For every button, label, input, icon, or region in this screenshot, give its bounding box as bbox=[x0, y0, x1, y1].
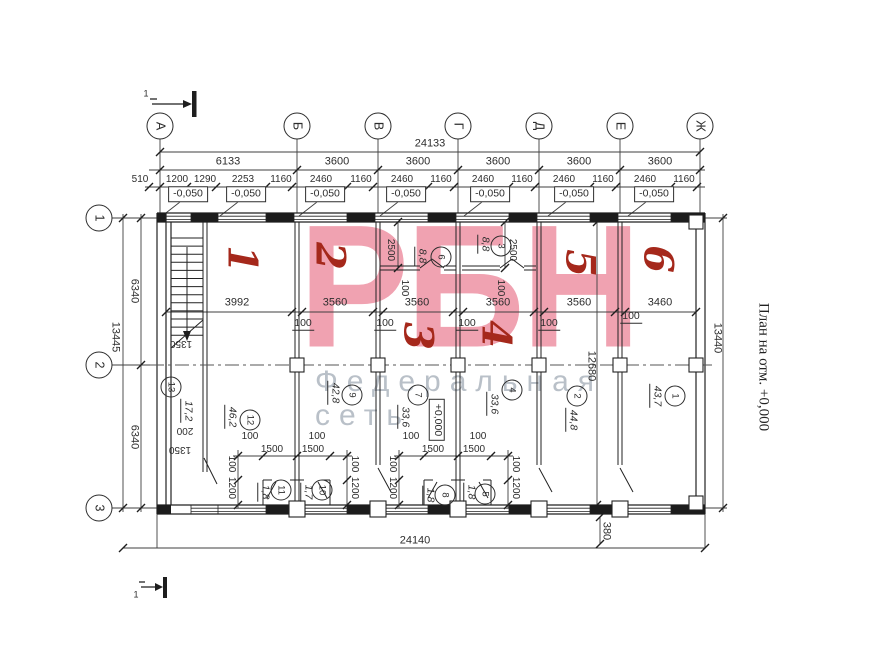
dim-label: 3560 bbox=[323, 298, 347, 309]
room-number-badge: 8 bbox=[435, 485, 456, 506]
elevation-badge: -0,050 bbox=[168, 186, 208, 202]
room-number-badge: 9 bbox=[342, 385, 363, 406]
dim-label: 6340 bbox=[129, 425, 140, 449]
room-area-label: 33,6 bbox=[398, 405, 411, 429]
dim-label: 100 bbox=[538, 318, 560, 331]
dim-label: 1500 bbox=[302, 445, 324, 455]
elevation-badge: -0,050 bbox=[470, 186, 510, 202]
dim-label: 1160 bbox=[592, 175, 614, 185]
room-area-label: 1,8 bbox=[464, 483, 477, 502]
dim-label: 100 bbox=[292, 318, 314, 331]
room-number-badge: 10 bbox=[312, 480, 333, 501]
dim-label: 1290 bbox=[194, 175, 216, 185]
elevation-badge: +0,000 bbox=[429, 399, 445, 441]
dim-label: 1160 bbox=[511, 175, 533, 185]
elevation-badge: -0,050 bbox=[386, 186, 426, 202]
dim-label: 100 bbox=[470, 432, 487, 442]
room-number-badge: 7 bbox=[408, 385, 429, 406]
axis-bubble: Ж bbox=[687, 113, 714, 140]
dim-label: 13445 bbox=[110, 322, 121, 353]
dim-label: 24133 bbox=[415, 139, 446, 150]
room-number-badge: 6 bbox=[431, 247, 452, 268]
red-room-mark: 2 bbox=[307, 242, 354, 270]
dim-label: 2460 bbox=[553, 175, 575, 185]
dim-label: 1200 bbox=[387, 477, 397, 499]
dim-label: 1160 bbox=[430, 175, 452, 185]
axis-bubble: 1 bbox=[86, 205, 113, 232]
floor-plan-canvas: РБН Федеральная сеть 2413361333600360036… bbox=[0, 0, 870, 652]
red-room-mark: 5 bbox=[557, 249, 604, 277]
dim-label: 100 bbox=[242, 432, 259, 442]
section-label: 1 bbox=[143, 90, 148, 99]
dim-label: 100 bbox=[403, 432, 420, 442]
room-number-badge: 13 bbox=[161, 377, 182, 398]
axis-bubble: 2 bbox=[86, 352, 113, 379]
dim-label: 100 bbox=[387, 456, 397, 473]
dim-label: 2500 bbox=[385, 239, 395, 261]
dim-label: 100 bbox=[226, 456, 236, 473]
dim-label: 100 bbox=[620, 311, 642, 324]
dim-label: 3600 bbox=[567, 157, 591, 168]
dim-label: 2460 bbox=[310, 175, 332, 185]
axis-bubble: Е bbox=[607, 113, 634, 140]
dim-label: 3600 bbox=[406, 157, 430, 168]
room-area-label: 17,2 bbox=[181, 399, 194, 423]
dim-label: 100 bbox=[309, 432, 326, 442]
red-room-mark: 4 bbox=[473, 320, 520, 348]
room-number-badge: 11 bbox=[271, 480, 292, 501]
room-area-label: 1,8 bbox=[423, 486, 436, 505]
axis-bubble: 3 bbox=[86, 495, 113, 522]
room-area-label: 8,8 bbox=[478, 235, 491, 254]
elevation-badge: -0,050 bbox=[305, 186, 345, 202]
dim-label: 2460 bbox=[472, 175, 494, 185]
red-room-mark: 1 bbox=[219, 245, 266, 273]
axis-bubble: Д bbox=[526, 113, 553, 140]
room-area-label: 42,8 bbox=[328, 381, 341, 405]
room-number-badge: 4 bbox=[502, 380, 523, 401]
dim-label: 1160 bbox=[270, 175, 292, 185]
dim-label: 100 bbox=[510, 456, 520, 473]
room-area-label: 1,7 bbox=[301, 483, 314, 502]
room-number-badge: 5 bbox=[475, 484, 496, 505]
dim-label: 100 bbox=[495, 280, 505, 297]
dim-label: 2460 bbox=[391, 175, 413, 185]
axis-bubble: Г bbox=[445, 113, 472, 140]
room-area-label: 44,8 bbox=[566, 408, 579, 432]
dim-label: 1500 bbox=[261, 445, 283, 455]
dim-label: 3460 bbox=[648, 298, 672, 309]
dim-label: 1160 bbox=[350, 175, 372, 185]
red-room-mark: 6 bbox=[635, 245, 682, 273]
dim-label: 3600 bbox=[486, 157, 510, 168]
dim-label: 1200 bbox=[166, 175, 188, 185]
room-area-label: 46,2 bbox=[225, 405, 238, 429]
dim-label: 12680 bbox=[586, 351, 597, 382]
room-area-label: 43,7 bbox=[650, 384, 663, 408]
dim-label: 1200 bbox=[349, 477, 359, 499]
dim-label: 2460 bbox=[634, 175, 656, 185]
dim-label: 1350 bbox=[170, 338, 192, 348]
dim-label: 510 bbox=[132, 175, 149, 185]
dim-label: 24140 bbox=[400, 536, 431, 547]
dim-label: 3600 bbox=[325, 157, 349, 168]
room-number-badge: 2 bbox=[567, 386, 588, 407]
dim-label: 6340 bbox=[129, 279, 140, 303]
dim-label: 6133 bbox=[216, 157, 240, 168]
dim-label: 1500 bbox=[463, 445, 485, 455]
dim-label: 13440 bbox=[712, 323, 723, 354]
dim-label: 3992 bbox=[225, 298, 249, 309]
dim-label: 3600 bbox=[648, 157, 672, 168]
room-area-label: 33,6 bbox=[487, 392, 500, 416]
dim-label: 1160 bbox=[673, 175, 695, 185]
dim-label: 100 bbox=[399, 280, 409, 297]
room-number-badge: 12 bbox=[240, 410, 261, 431]
dim-label: 200 bbox=[177, 425, 194, 435]
dim-label: 1200 bbox=[510, 477, 520, 499]
elevation-badge: -0,050 bbox=[226, 186, 266, 202]
dim-label: 3560 bbox=[567, 298, 591, 309]
plan-caption: План на отм. +0,000 bbox=[755, 303, 772, 431]
axis-bubble: В bbox=[365, 113, 392, 140]
dim-label: 2253 bbox=[232, 175, 254, 185]
text-labels: 2413361333600360036003600360051012001290… bbox=[0, 0, 870, 652]
dim-label: 1500 bbox=[422, 445, 444, 455]
dim-label: 100 bbox=[349, 456, 359, 473]
section-label: 1 bbox=[133, 591, 138, 600]
axis-bubble: Б bbox=[284, 113, 311, 140]
dim-label: 3560 bbox=[405, 298, 429, 309]
room-area-label: 1,8 bbox=[258, 483, 271, 502]
dim-label: 1200 bbox=[226, 477, 236, 499]
room-number-badge: 1 bbox=[665, 386, 686, 407]
room-area-label: 8,8 bbox=[415, 247, 428, 266]
elevation-badge: -0,050 bbox=[634, 186, 674, 202]
dim-label: 100 bbox=[374, 318, 396, 331]
dim-label: 1350 bbox=[169, 444, 191, 454]
dim-label: 380 bbox=[601, 522, 612, 540]
elevation-badge: -0,050 bbox=[554, 186, 594, 202]
room-number-badge: 3 bbox=[491, 236, 512, 257]
red-room-mark: 3 bbox=[395, 322, 442, 350]
dim-label: 3560 bbox=[486, 298, 510, 309]
axis-bubble: А bbox=[147, 113, 174, 140]
